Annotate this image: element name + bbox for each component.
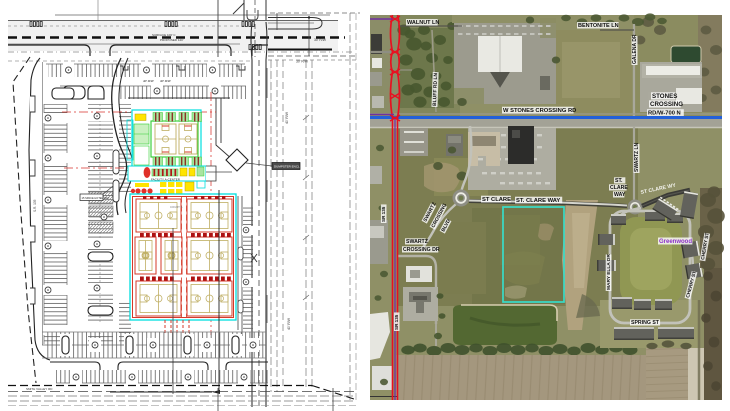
svg-text:CROSSING DR: CROSSING DR: [403, 247, 440, 253]
svg-text:STONES: STONES: [652, 93, 677, 100]
svg-text:15 SPACE HOTEL WAY: 15 SPACE HOTEL WAY: [82, 196, 110, 200]
svg-text:MARY ELLA DR: MARY ELLA DR: [606, 254, 612, 290]
svg-text:DUMPSTER ENCL: DUMPSTER ENCL: [274, 165, 300, 169]
svg-text:S.R. 135: S.R. 135: [33, 199, 37, 212]
svg-text:CLARE: CLARE: [610, 185, 628, 191]
svg-text:SR 135: SR 135: [394, 314, 399, 330]
svg-text:SWARTZ LN: SWARTZ LN: [634, 142, 640, 172]
svg-text:BENTONITE LN: BENTONITE LN: [578, 23, 619, 29]
svg-text:30' R/W: 30' R/W: [314, 38, 327, 42]
svg-text:ST.: ST.: [615, 178, 623, 184]
svg-text:GALENA DR: GALENA DR: [632, 34, 638, 64]
svg-text:WALNUT LN: WALNUT LN: [407, 20, 439, 26]
svg-text:W STONES CROSSING RD: W STONES CROSSING RD: [503, 108, 576, 114]
svg-text:40' R/W: 40' R/W: [143, 79, 155, 83]
svg-text:ST CLARE: ST CLARE: [482, 197, 511, 203]
svg-text:ST. CLARE WAY: ST. CLARE WAY: [516, 198, 560, 204]
svg-text:SWARTZ: SWARTZ: [406, 239, 429, 245]
svg-text:30' R/W: 30' R/W: [160, 79, 172, 83]
svg-text:30' R/W: 30' R/W: [296, 60, 309, 64]
svg-text:SMITH VALLEY RD: SMITH VALLEY RD: [26, 387, 53, 391]
svg-text:40' R/W: 40' R/W: [287, 317, 291, 330]
svg-text:CROSSING: CROSSING: [650, 101, 683, 108]
svg-text:40' R/W: 40' R/W: [285, 111, 289, 124]
svg-text:RD/W-700 N: RD/W-700 N: [648, 111, 681, 117]
svg-text:WAY: WAY: [614, 192, 626, 198]
svg-text:SPRING ST: SPRING ST: [631, 320, 660, 326]
svg-text:SR 135: SR 135: [381, 206, 386, 222]
svg-text:SURFACE 100' C: SURFACE 100' C: [152, 33, 176, 37]
svg-text:COURT A: COURT A: [170, 205, 182, 209]
svg-text:FACILITY A-CENTER: FACILITY A-CENTER: [151, 178, 181, 182]
svg-text:PROPOSED 120': PROPOSED 120': [160, 38, 184, 42]
svg-text:BLUFF RD LN: BLUFF RD LN: [432, 72, 439, 106]
svg-text:Greenwood: Greenwood: [659, 239, 692, 245]
